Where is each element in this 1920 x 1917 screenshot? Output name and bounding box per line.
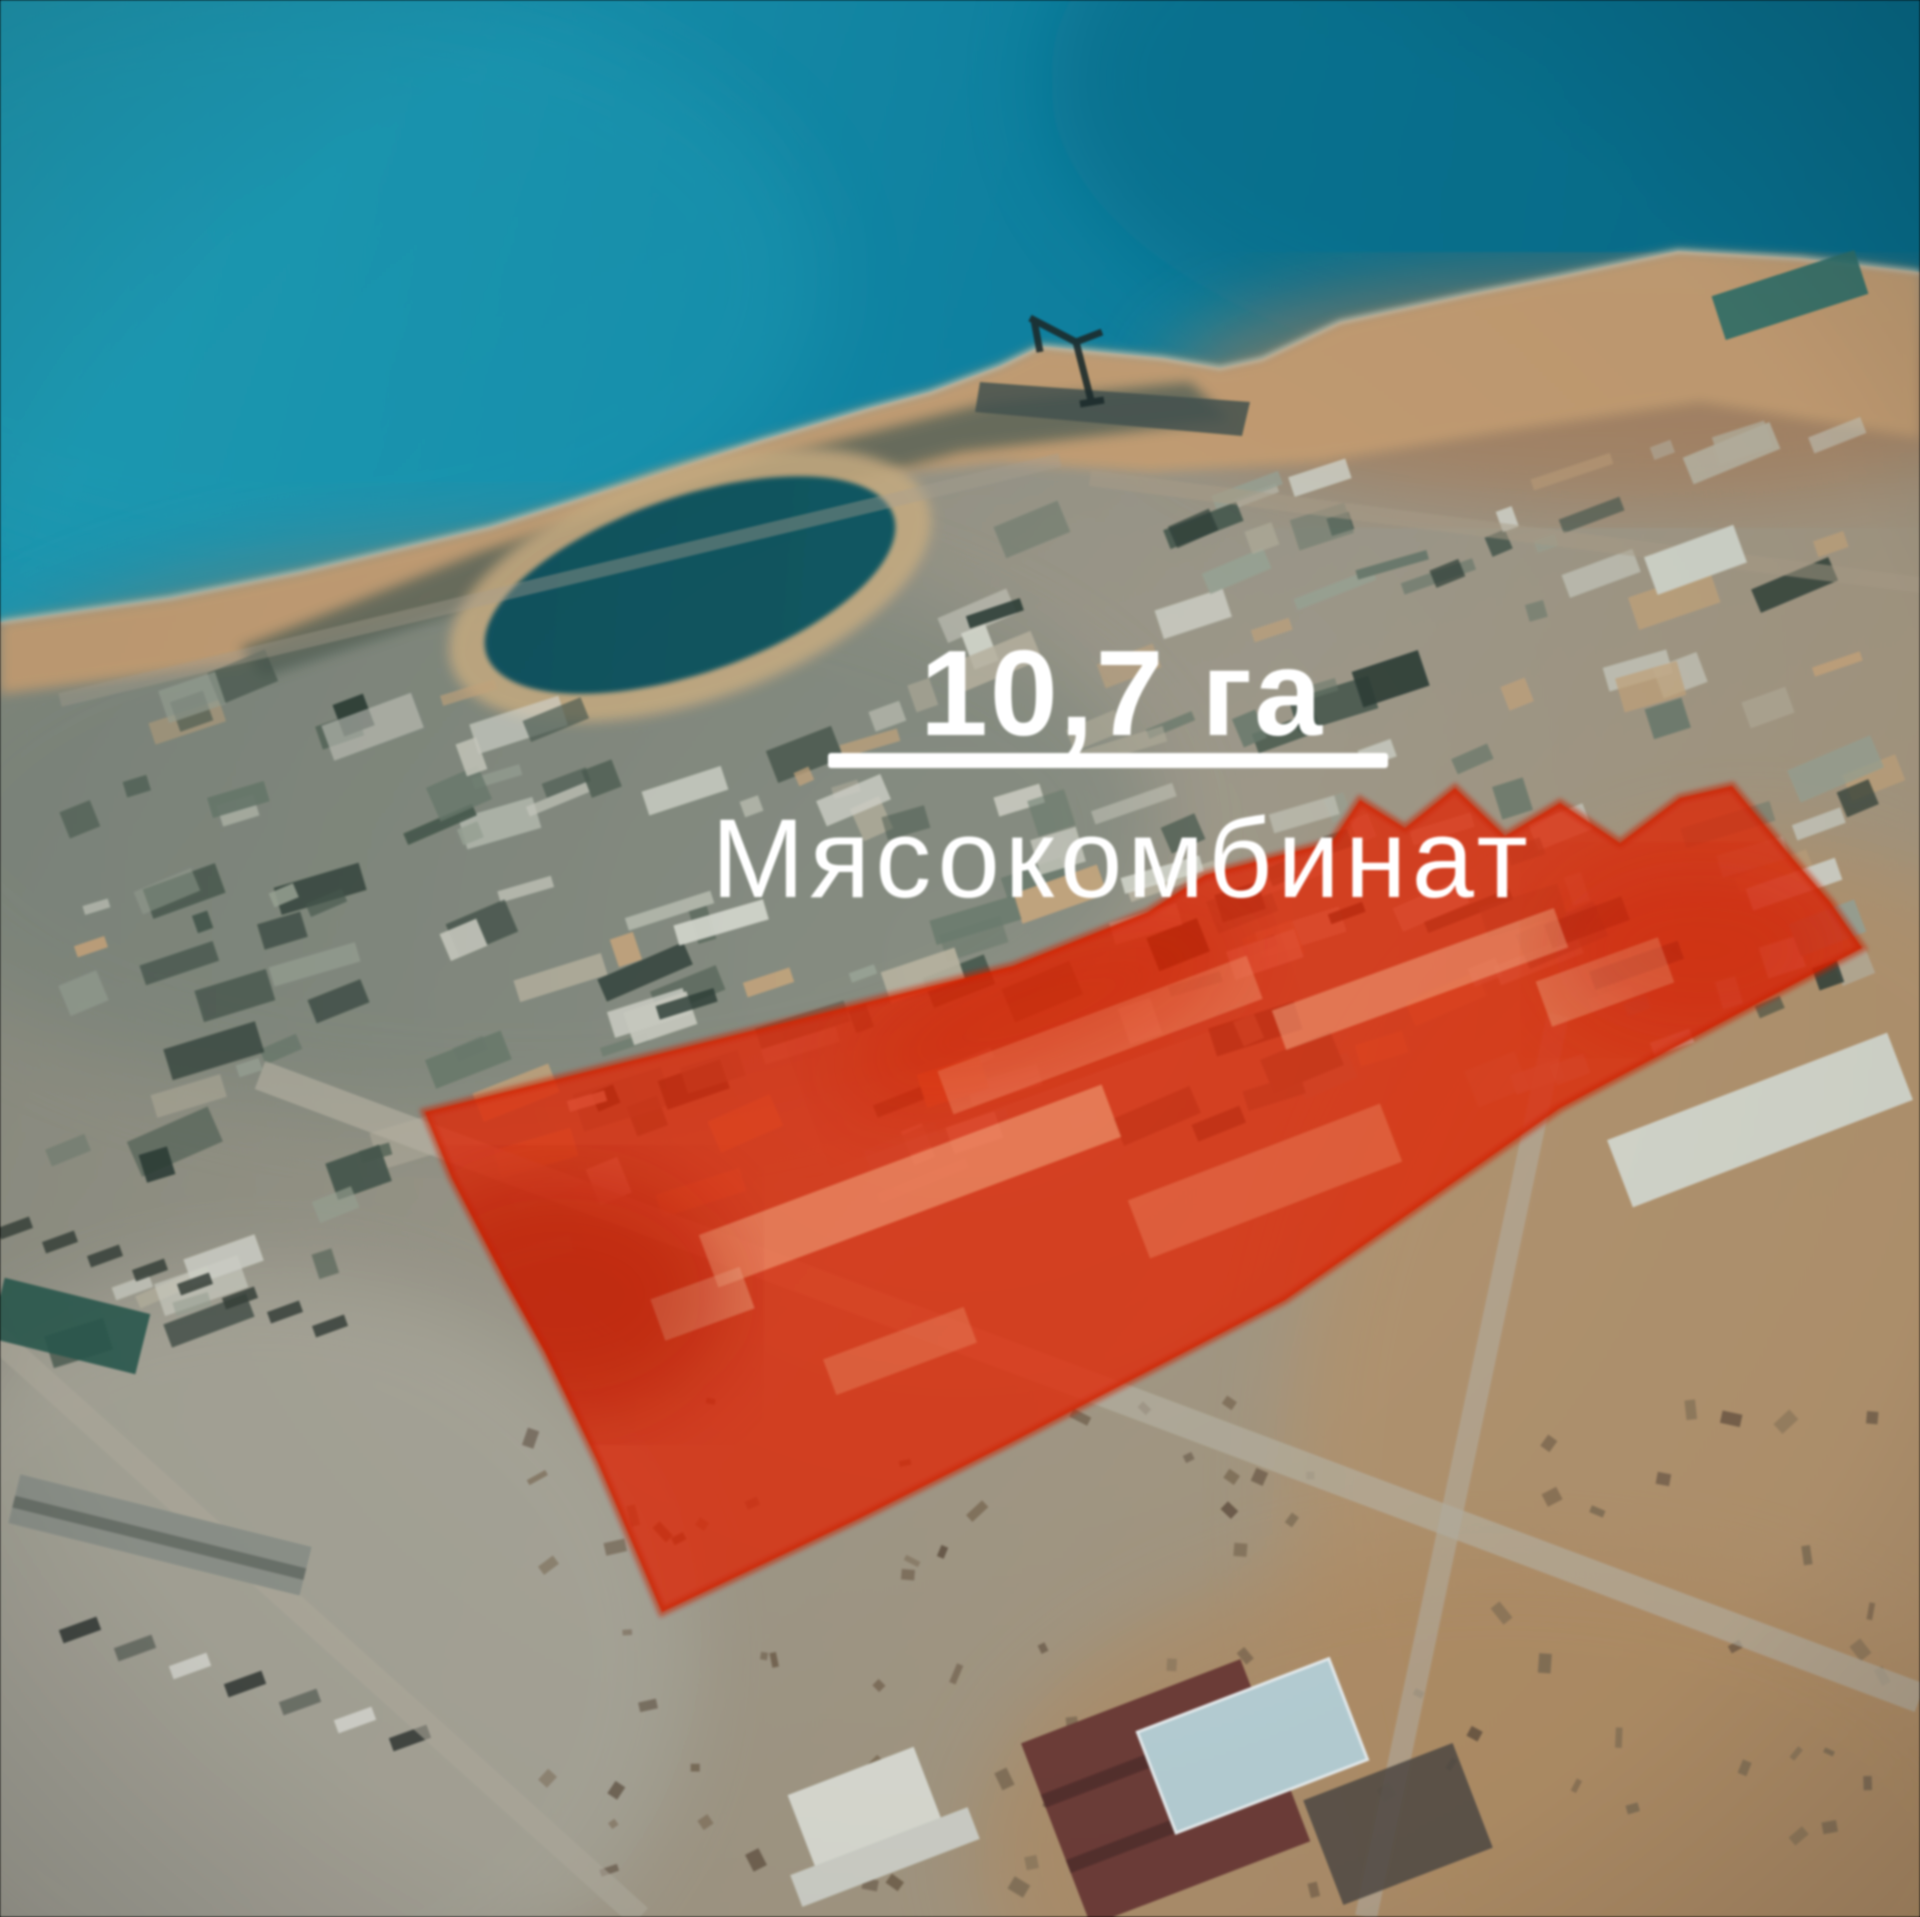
area-size-label: 10,7 га bbox=[920, 625, 1324, 761]
aerial-photo: 10,7 га Мясокомбинат bbox=[0, 0, 1920, 1917]
area-size-underline bbox=[828, 753, 1388, 768]
site-name-label: Мясокомбинат bbox=[711, 796, 1532, 921]
screenshot-root: 10,7 га Мясокомбинат bbox=[0, 0, 1920, 1917]
vignette bbox=[0, 0, 1920, 1917]
